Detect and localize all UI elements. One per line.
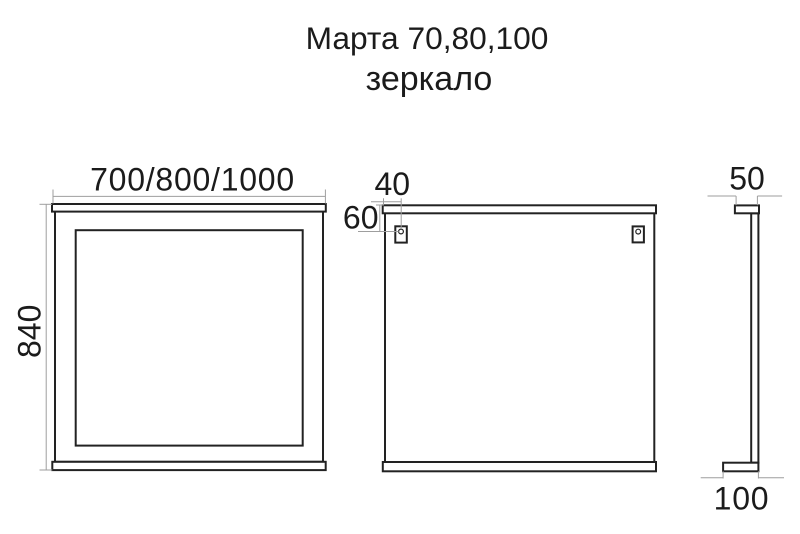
svg-text:зеркало: зеркало — [366, 60, 493, 98]
svg-text:60: 60 — [343, 199, 379, 235]
svg-text:840: 840 — [12, 305, 48, 358]
svg-text:50: 50 — [729, 160, 765, 196]
svg-text:Марта 70,80,100: Марта 70,80,100 — [306, 20, 549, 56]
svg-text:100: 100 — [714, 480, 770, 516]
svg-text:700/800/1000: 700/800/1000 — [90, 161, 295, 197]
svg-text:40: 40 — [375, 166, 411, 202]
